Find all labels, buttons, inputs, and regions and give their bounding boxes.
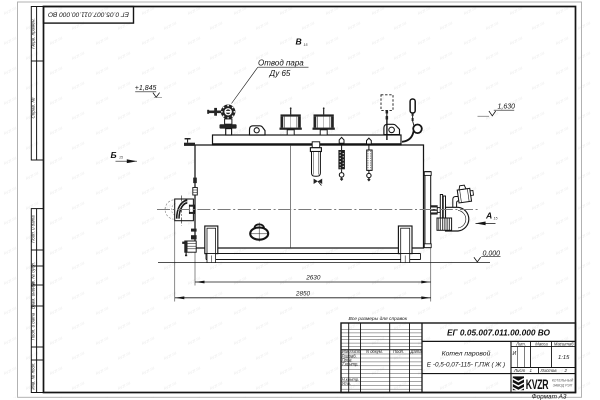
svg-text:Ду 65: Ду 65: [269, 69, 291, 78]
svg-text:2630: 2630: [305, 275, 321, 282]
svg-text:Котел паровой: Котел паровой: [442, 349, 491, 357]
svg-text:Отвод пара: Отвод пара: [258, 59, 304, 68]
svg-text:Подп.: Подп.: [393, 349, 404, 354]
svg-text:Дата: Дата: [410, 349, 423, 354]
svg-text:15: 15: [119, 156, 123, 160]
svg-text:КОТЕЛЬНЫЙ: КОТЕЛЬНЫЙ: [552, 379, 574, 383]
svg-text:Подп. и дата: Подп. и дата: [31, 312, 36, 340]
svg-text:В: В: [296, 37, 302, 47]
svg-text:Инв. № подл.: Инв. № подл.: [31, 362, 36, 389]
svg-text:15: 15: [494, 217, 498, 221]
svg-text:Перв. примен.: Перв. примен.: [31, 18, 36, 49]
svg-text:2: 2: [564, 368, 568, 373]
svg-text:Е -0,5-0,07-115- Г,ПЖ ( Ж ): Е -0,5-0,07-115- Г,ПЖ ( Ж ): [427, 361, 505, 368]
svg-text:Справ. №: Справ. №: [31, 98, 36, 119]
svg-text:ЕГ 0.05.007.011.00.000 ВО: ЕГ 0.05.007.011.00.000 ВО: [447, 327, 551, 337]
svg-text:И: И: [512, 351, 516, 357]
svg-text:Лит.: Лит.: [515, 341, 526, 346]
svg-text:Б: Б: [111, 150, 117, 160]
svg-text:Взам. инв. №: Взам. инв. №: [31, 282, 36, 309]
svg-text:N докум.: N докум.: [366, 349, 383, 354]
svg-text:1,630: 1,630: [498, 104, 516, 111]
svg-text:0,000: 0,000: [483, 250, 501, 257]
svg-text:1:15: 1:15: [558, 355, 570, 361]
svg-text:А: А: [485, 211, 492, 221]
svg-text:Масштаб: Масштаб: [554, 341, 574, 346]
svg-text:ЕГ 0.05.007.011.00.000 ВО: ЕГ 0.05.007.011.00.000 ВО: [48, 10, 129, 17]
svg-text:ЗАВОД РЭП: ЗАВОД РЭП: [553, 384, 573, 388]
svg-text:15: 15: [304, 43, 308, 47]
svg-text:KVZR: KVZR: [526, 378, 549, 392]
svg-text:Формат А3: Формат А3: [532, 394, 567, 400]
svg-text:+1,845: +1,845: [135, 85, 157, 92]
svg-text:Листов: Листов: [540, 368, 558, 373]
svg-text:Масса: Масса: [535, 341, 548, 346]
svg-text:Все размеры для справок: Все размеры для справок: [349, 316, 408, 322]
svg-text:2850: 2850: [295, 290, 311, 297]
svg-text:Подп. и дата: Подп. и дата: [31, 215, 36, 243]
svg-text:Утв.: Утв.: [342, 381, 352, 386]
svg-text:Лист: Лист: [513, 368, 526, 373]
svg-text:Т.контр.: Т.контр.: [342, 361, 359, 366]
